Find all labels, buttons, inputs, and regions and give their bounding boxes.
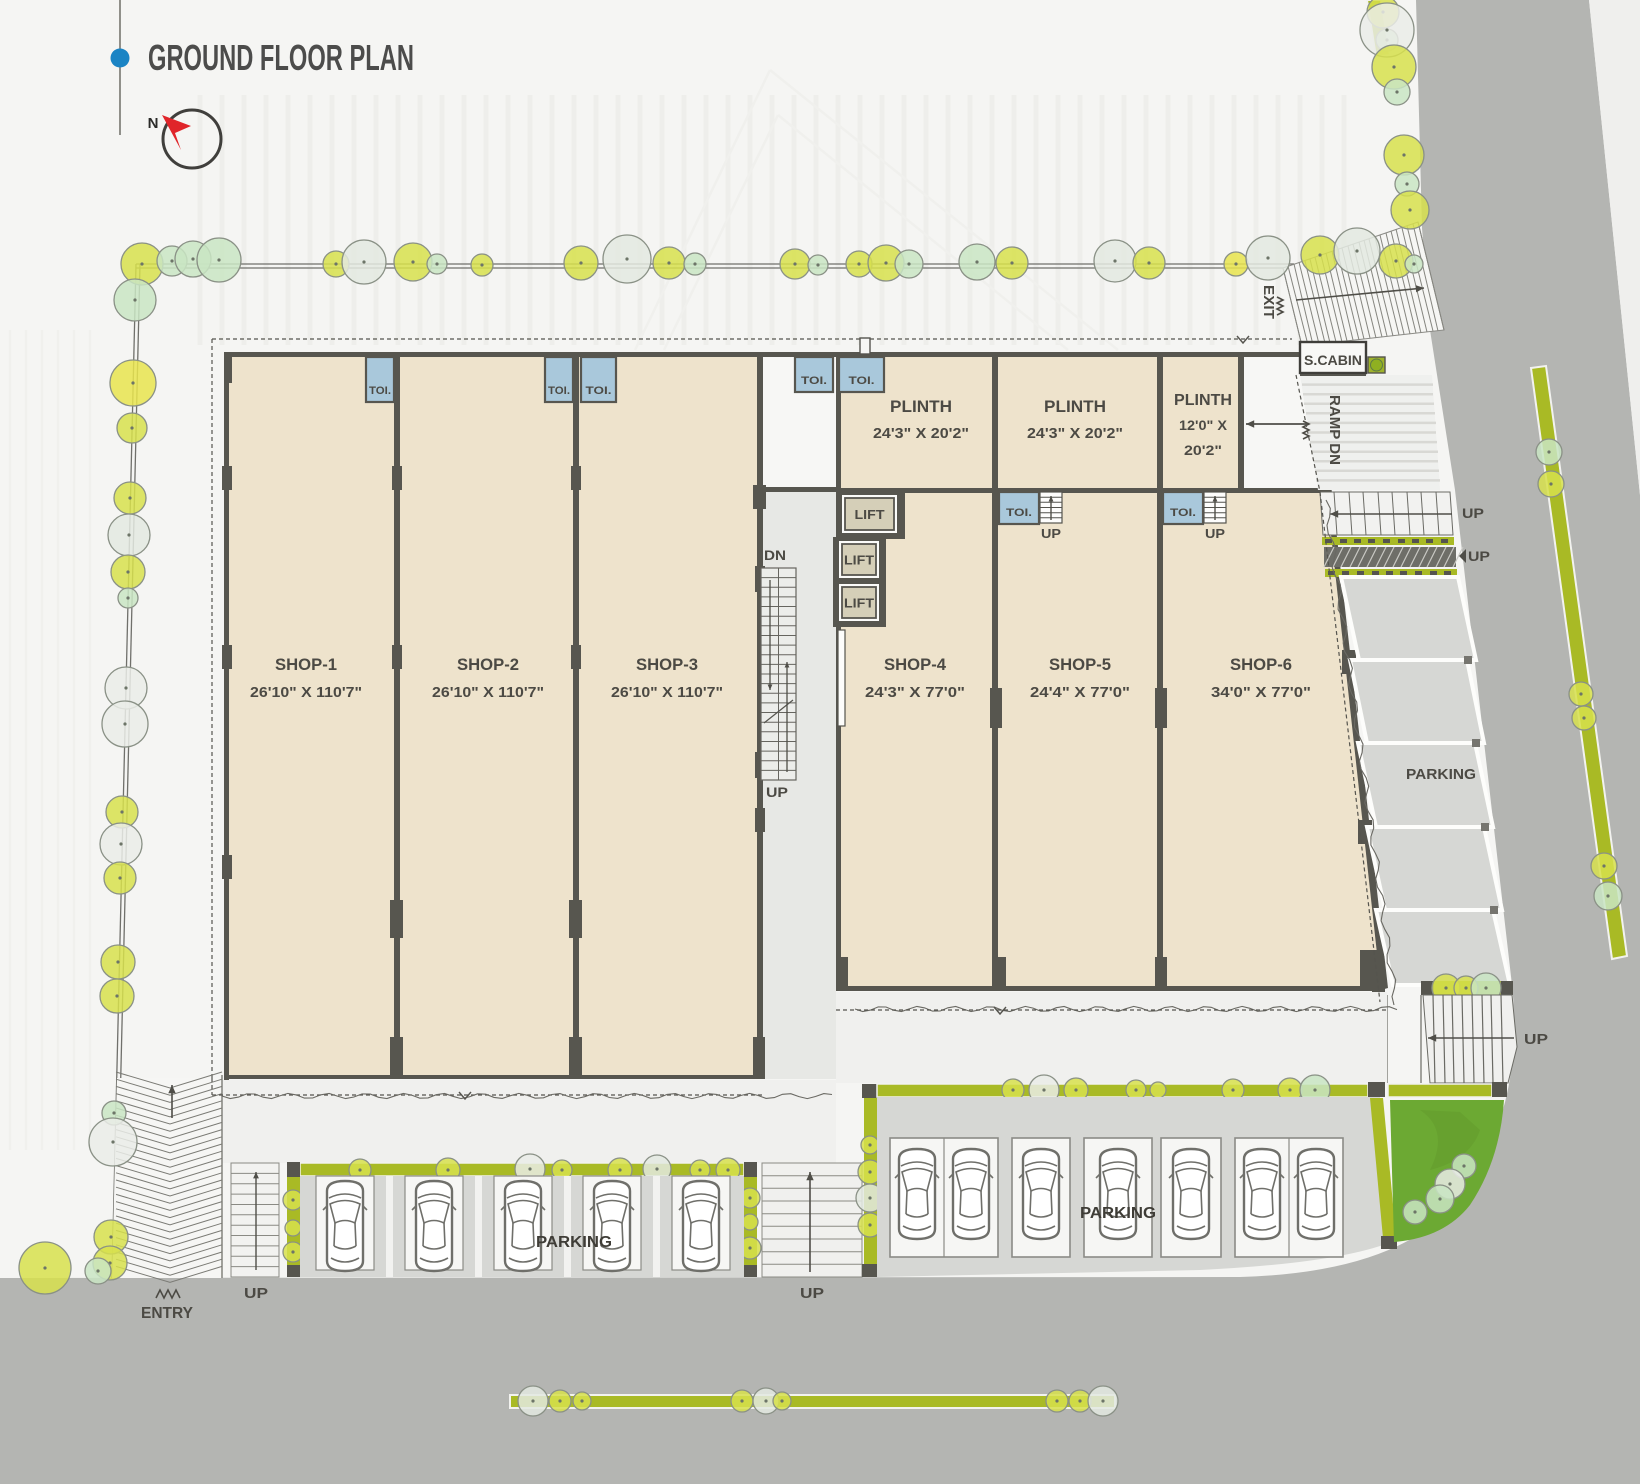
svg-text:TOI.: TOI. [1170, 507, 1196, 519]
svg-text:N: N [148, 115, 159, 132]
svg-text:UP: UP [1041, 526, 1061, 541]
svg-text:LIFT: LIFT [855, 507, 885, 522]
svg-text:PARKING: PARKING [1080, 1205, 1156, 1222]
svg-text:TOI.: TOI. [801, 375, 827, 387]
svg-text:SHOP-4: SHOP-4 [884, 655, 947, 674]
svg-text:26'10" X 110'7": 26'10" X 110'7" [432, 684, 544, 701]
svg-text:LIFT: LIFT [844, 553, 874, 568]
svg-text:PLINTH: PLINTH [890, 397, 952, 416]
svg-text:S.CABIN: S.CABIN [1304, 352, 1362, 368]
svg-text:LIFT: LIFT [844, 596, 874, 611]
svg-text:TOI.: TOI. [586, 385, 612, 397]
svg-text:UP: UP [1205, 526, 1225, 541]
svg-text:UP: UP [1462, 505, 1484, 521]
svg-text:UP: UP [766, 784, 788, 800]
svg-text:UP: UP [1468, 548, 1490, 564]
svg-text:24'3" X 20'2": 24'3" X 20'2" [873, 425, 969, 442]
svg-text:24'3" X 20'2": 24'3" X 20'2" [1027, 425, 1123, 442]
svg-text:20'2": 20'2" [1184, 442, 1222, 458]
svg-text:SHOP-6: SHOP-6 [1230, 655, 1292, 674]
svg-text:PARKING: PARKING [536, 1234, 612, 1251]
svg-text:UP: UP [800, 1285, 824, 1302]
svg-text:TOI.: TOI. [849, 375, 875, 387]
svg-text:26'10" X 110'7": 26'10" X 110'7" [611, 684, 723, 701]
svg-text:SHOP-1: SHOP-1 [275, 655, 337, 674]
svg-text:PLINTH: PLINTH [1174, 392, 1232, 409]
svg-text:34'0" X 77'0": 34'0" X 77'0" [1211, 684, 1311, 701]
svg-text:UP: UP [1524, 1031, 1548, 1048]
svg-text:24'4" X 77'0": 24'4" X 77'0" [1030, 684, 1130, 701]
svg-text:DN: DN [764, 547, 786, 563]
svg-text:GROUND FLOOR PLAN: GROUND FLOOR PLAN [148, 37, 414, 78]
svg-text:EXIT: EXIT [1260, 285, 1277, 319]
svg-text:SHOP-3: SHOP-3 [636, 655, 698, 674]
svg-text:RAMP DN: RAMP DN [1326, 395, 1343, 465]
svg-text:PLINTH: PLINTH [1044, 397, 1106, 416]
svg-text:ENTRY: ENTRY [141, 1305, 193, 1322]
svg-text:TOI.: TOI. [1006, 507, 1032, 519]
svg-text:26'10" X 110'7": 26'10" X 110'7" [250, 684, 362, 701]
svg-text:TOI.: TOI. [369, 385, 391, 397]
svg-text:SHOP-2: SHOP-2 [457, 655, 519, 674]
svg-text:12'0" X: 12'0" X [1179, 417, 1228, 433]
svg-text:UP: UP [244, 1285, 268, 1302]
svg-text:SHOP-5: SHOP-5 [1049, 655, 1111, 674]
svg-text:TOI.: TOI. [548, 385, 570, 397]
svg-text:PARKING: PARKING [1406, 766, 1476, 783]
svg-text:24'3" X 77'0": 24'3" X 77'0" [865, 684, 965, 701]
